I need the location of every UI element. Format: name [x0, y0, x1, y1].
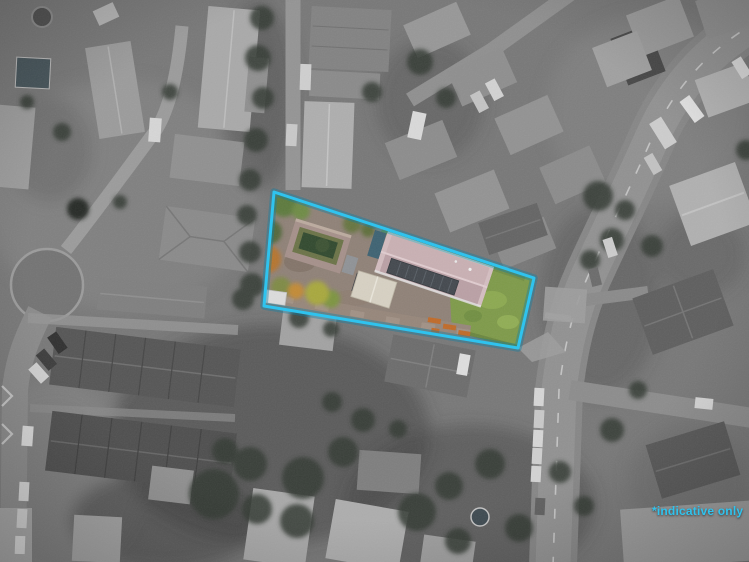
indicative-only-label: *indicative only [652, 504, 747, 518]
aerial-scene [0, 0, 749, 562]
aerial-photograph: *indicative only [0, 0, 749, 562]
vignette [0, 0, 749, 562]
